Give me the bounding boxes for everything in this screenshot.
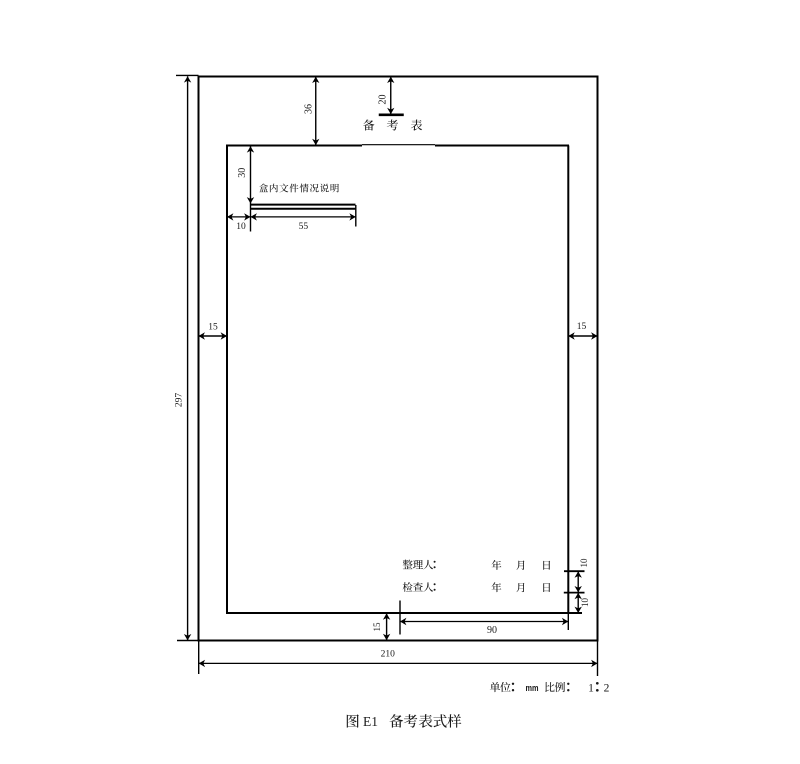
- svg-text:10: 10: [579, 558, 589, 568]
- svg-text:55: 55: [299, 222, 309, 232]
- svg-text:15: 15: [208, 322, 218, 332]
- svg-text:E1: E1: [363, 714, 378, 729]
- svg-text:15: 15: [577, 322, 587, 332]
- svg-text:20: 20: [378, 95, 389, 105]
- svg-text:15: 15: [372, 622, 382, 632]
- svg-text:90: 90: [487, 625, 497, 636]
- svg-text:30: 30: [237, 168, 248, 178]
- svg-text:10: 10: [580, 598, 590, 608]
- svg-text:10: 10: [236, 222, 246, 232]
- svg-text:210: 210: [381, 649, 396, 659]
- svg-text:36: 36: [304, 104, 315, 114]
- svg-text:2: 2: [604, 683, 610, 695]
- svg-text:297: 297: [174, 393, 184, 408]
- svg-text:mm: mm: [526, 683, 539, 694]
- svg-text:1: 1: [588, 683, 594, 695]
